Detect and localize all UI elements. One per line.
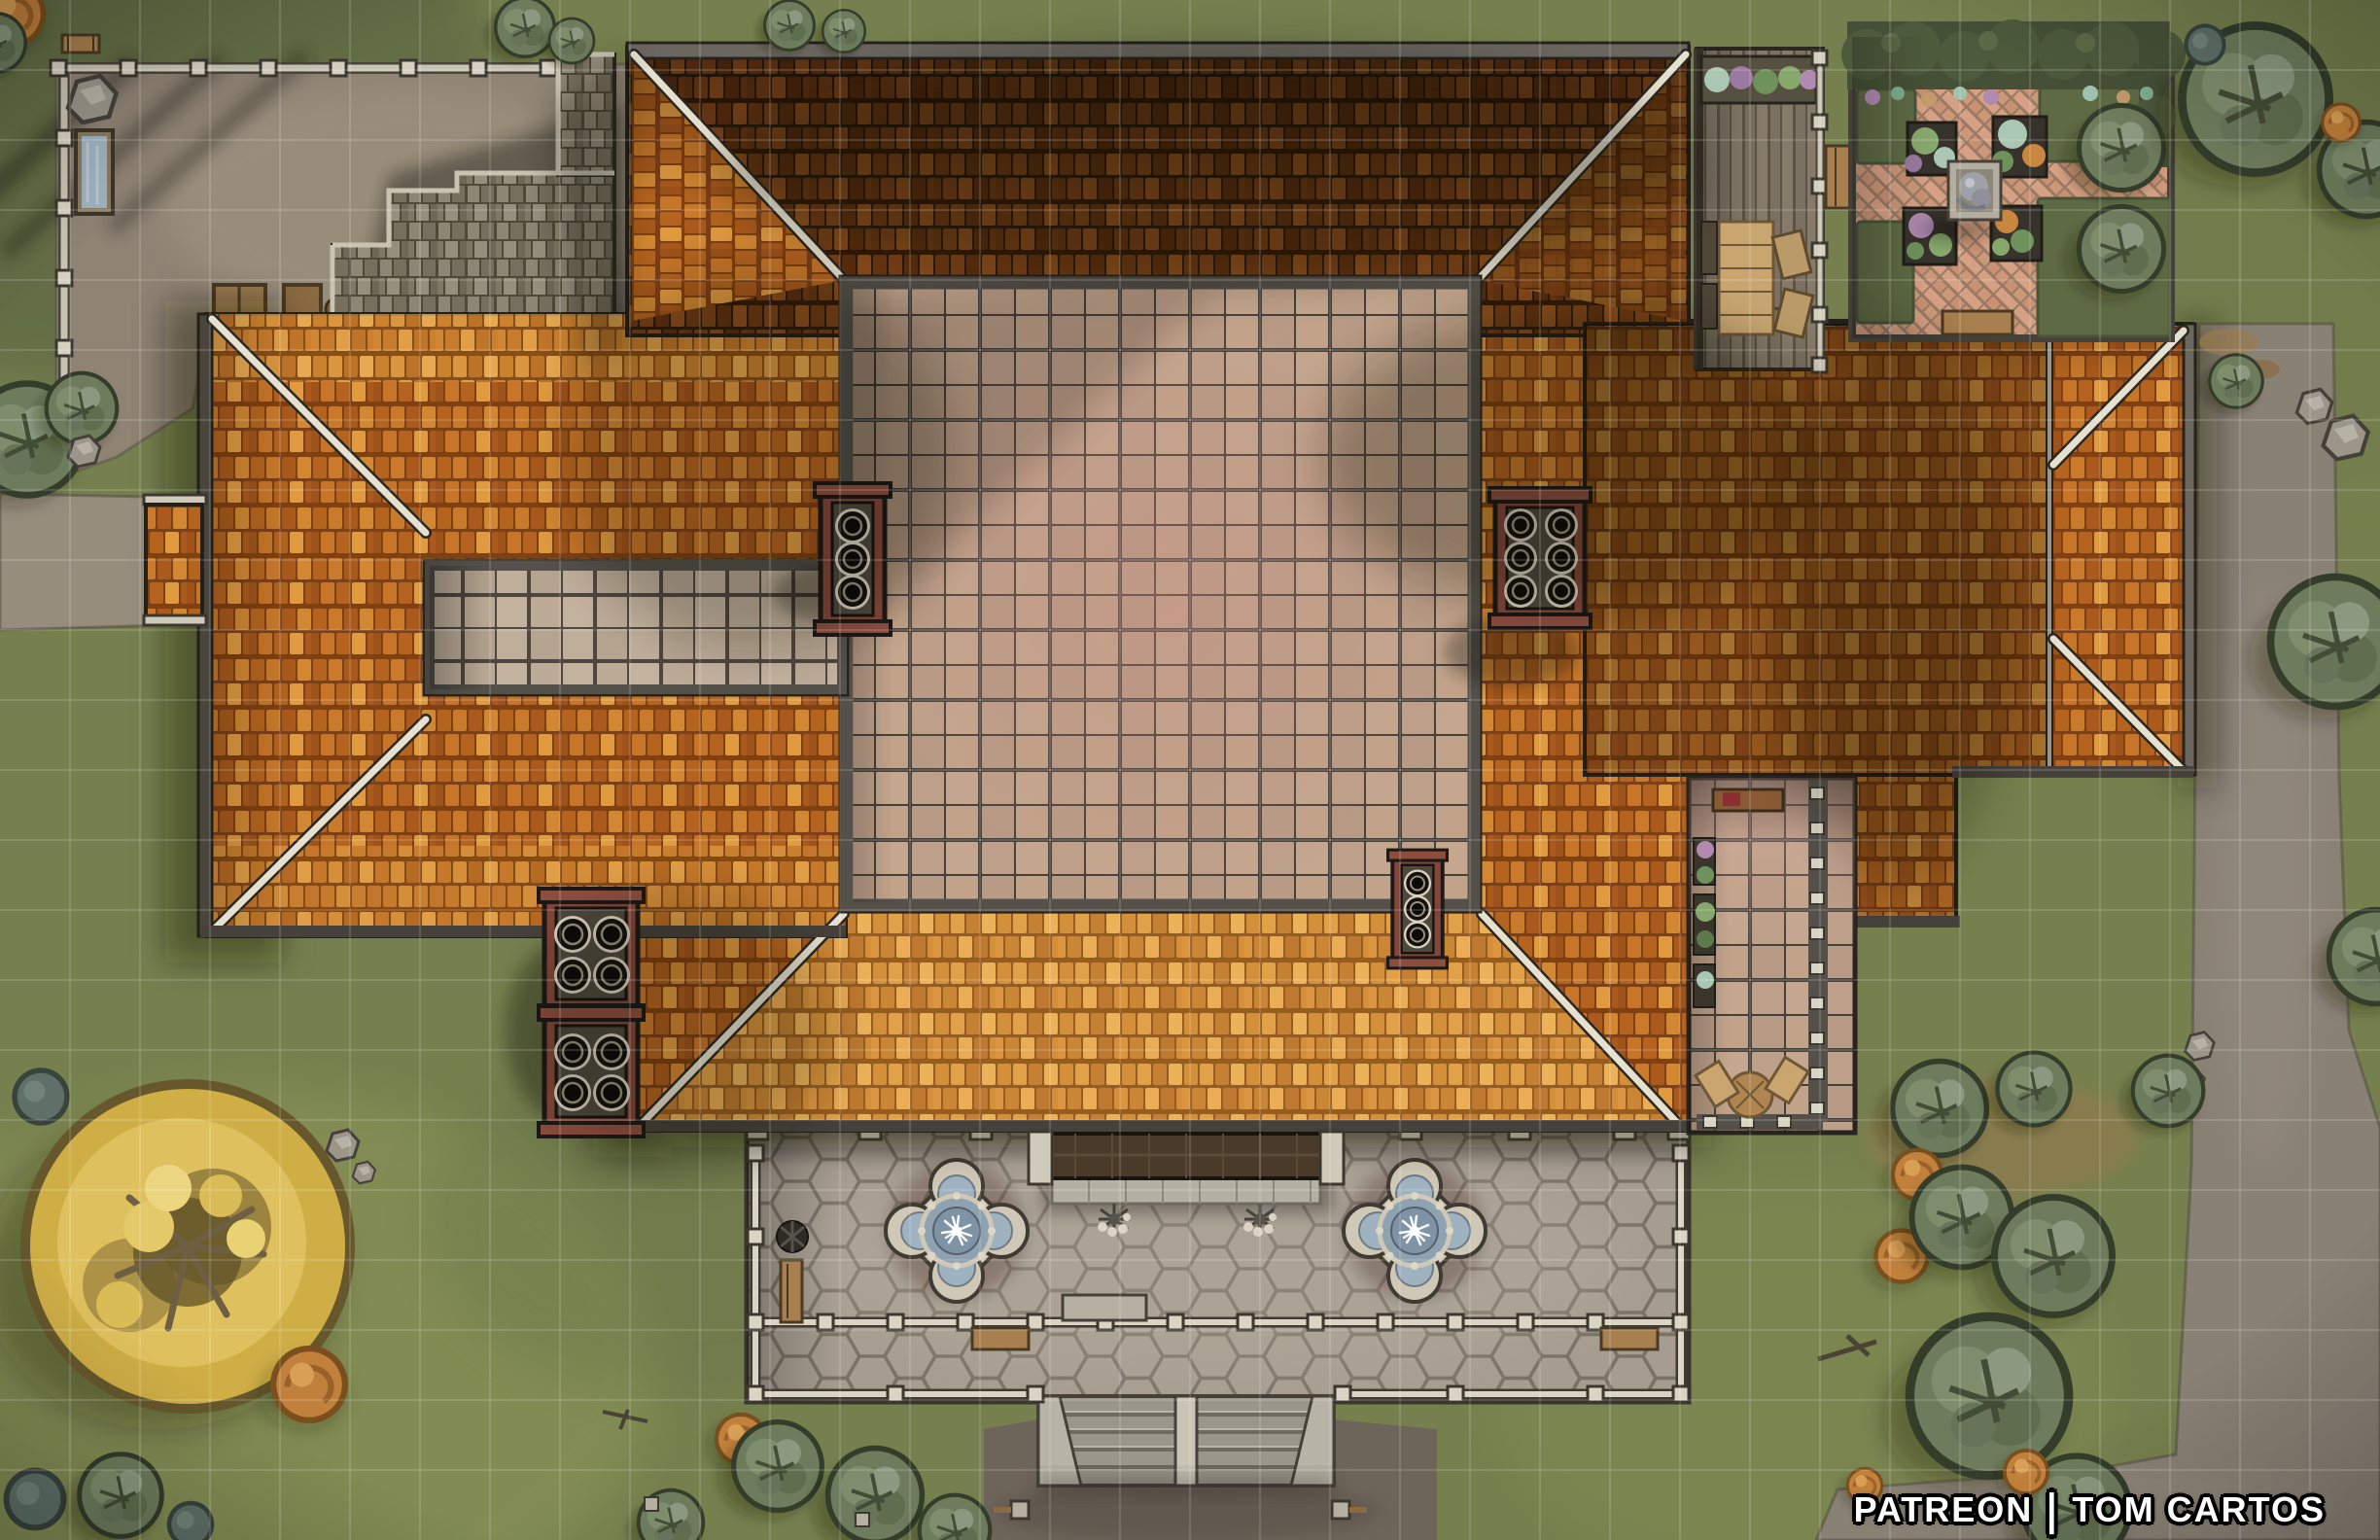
watermark-author: TOM CARTOS [2072,1489,2326,1530]
watermark-site: PATREON [1854,1489,2034,1530]
map-canvas [0,0,2380,1540]
watermark-separator: | [2047,1485,2058,1536]
battle-map: PATREON | TOM CARTOS [0,0,2380,1540]
watermark: PATREON | TOM CARTOS [1854,1489,2326,1530]
